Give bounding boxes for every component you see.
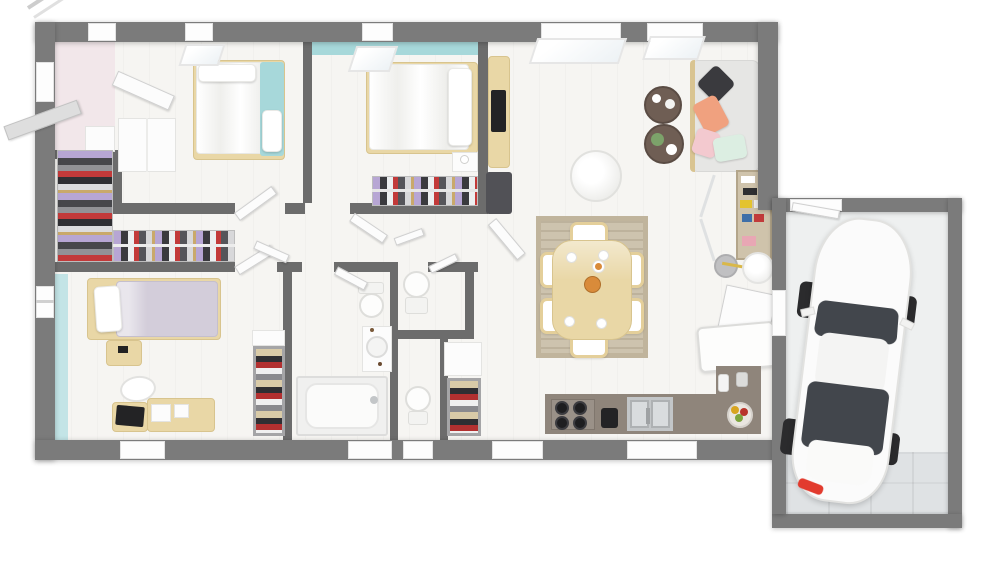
casement-living-2 [642, 36, 706, 60]
bed3-duvet [116, 281, 218, 337]
toilet-a-bowl [359, 293, 384, 318]
door-frame-line-1 [27, 0, 110, 10]
door-wc2-garden [403, 441, 433, 459]
plate-3 [564, 316, 575, 327]
burner-4 [573, 416, 587, 430]
dark-cabinet [486, 172, 512, 214]
window-bedroom1 [185, 23, 213, 41]
pantry-item-yellow [740, 200, 752, 208]
casement-bedroom2 [348, 46, 398, 72]
pantry-item-blue [742, 214, 752, 222]
faucet [646, 408, 650, 424]
bathtub-faucet [370, 396, 378, 404]
front-door-opening [36, 62, 54, 102]
toilet-c-bowl [405, 386, 431, 412]
sink-accessory-2 [378, 362, 382, 366]
pantry-item-red [754, 214, 764, 222]
garage-house-door-opening [772, 290, 786, 336]
window-entry [88, 23, 116, 41]
nightstand-phone [118, 346, 128, 353]
casement-living-1 [529, 38, 627, 64]
pantry-item-shoe-white [741, 176, 755, 183]
sofa-wood-frame [690, 60, 695, 172]
paper-lantern [742, 252, 774, 284]
closet1-top-shelf [252, 330, 285, 346]
round-armchair [570, 150, 622, 202]
bed2-pillows [448, 68, 472, 146]
bed1-white-pillow [262, 110, 282, 152]
sink-right [651, 400, 670, 428]
wc2-clothes-shelf [447, 378, 481, 436]
bedroom-3-accent-wall [55, 274, 68, 440]
table-plant [651, 133, 664, 146]
burner-1 [555, 401, 569, 415]
garage-wall-east [948, 198, 962, 528]
wall-bedrooms-hallway-1 [113, 203, 235, 214]
toilet-b-bowl [403, 271, 430, 298]
wall-hallway-south-1 [35, 262, 235, 272]
bathtub-basin [305, 383, 379, 429]
coffee-table-1 [644, 86, 682, 124]
sink-accessory-1 [370, 328, 374, 332]
table-cup-3 [666, 144, 677, 155]
sink-basin [366, 336, 388, 358]
car-trunk [805, 439, 875, 487]
window-bedroom2 [362, 23, 393, 41]
wardrobe-door-split [146, 118, 148, 172]
fruit-yellow [731, 406, 739, 414]
hanging-rack-vertical [57, 150, 113, 262]
window-kitchen [627, 441, 697, 459]
jar [736, 372, 748, 387]
coffee-machine [601, 408, 618, 428]
rack-rail [113, 244, 235, 247]
toilet-c-base [408, 411, 428, 425]
laptop [115, 405, 145, 427]
floor-plan-scene [0, 0, 1000, 563]
bed3-nightstand [106, 340, 142, 366]
bedroom3-clothes-shelf [253, 346, 285, 436]
toilet-b-tank [405, 297, 428, 314]
wall-bedroom1-bedroom2 [303, 42, 312, 203]
closet-rail-bar [372, 189, 478, 192]
linen-cabinet [444, 342, 482, 376]
typewriter [151, 404, 171, 422]
desk-device [174, 404, 189, 418]
burner-3 [555, 416, 569, 430]
wall-hallway-south-2 [277, 262, 302, 272]
wall-wc1-wc2 [398, 330, 468, 339]
shoe-cabinet [85, 126, 115, 152]
plate-4 [596, 318, 607, 329]
table-cup-2 [665, 99, 675, 109]
nightstand-cup [460, 155, 469, 164]
bed1-pillows [198, 64, 256, 82]
coffee-table-2 [644, 124, 684, 164]
bed3-pillow [93, 285, 122, 333]
window-mullion [36, 300, 54, 303]
plate-1 [566, 252, 577, 263]
bread [595, 263, 602, 270]
bottle [718, 374, 729, 392]
pantry-item-pink [742, 236, 756, 246]
fruit-green [735, 414, 743, 422]
burner-2 [573, 401, 587, 415]
garage-wall-south [772, 514, 962, 528]
window-bedroom3 [120, 441, 165, 459]
door-bathroom-garden [348, 441, 392, 459]
pantry-item-shoe-black [743, 188, 757, 195]
window-living-south [492, 441, 543, 459]
centerpiece-bowl [584, 276, 601, 293]
wall-east [758, 22, 778, 210]
door-frame-line-2 [33, 0, 108, 19]
wall-wc1-east [465, 262, 474, 339]
table-cup-1 [652, 94, 661, 103]
desk-monitor [491, 90, 506, 132]
wall-bedrooms-hallway-2 [285, 203, 305, 214]
casement-bedroom1 [178, 44, 225, 66]
